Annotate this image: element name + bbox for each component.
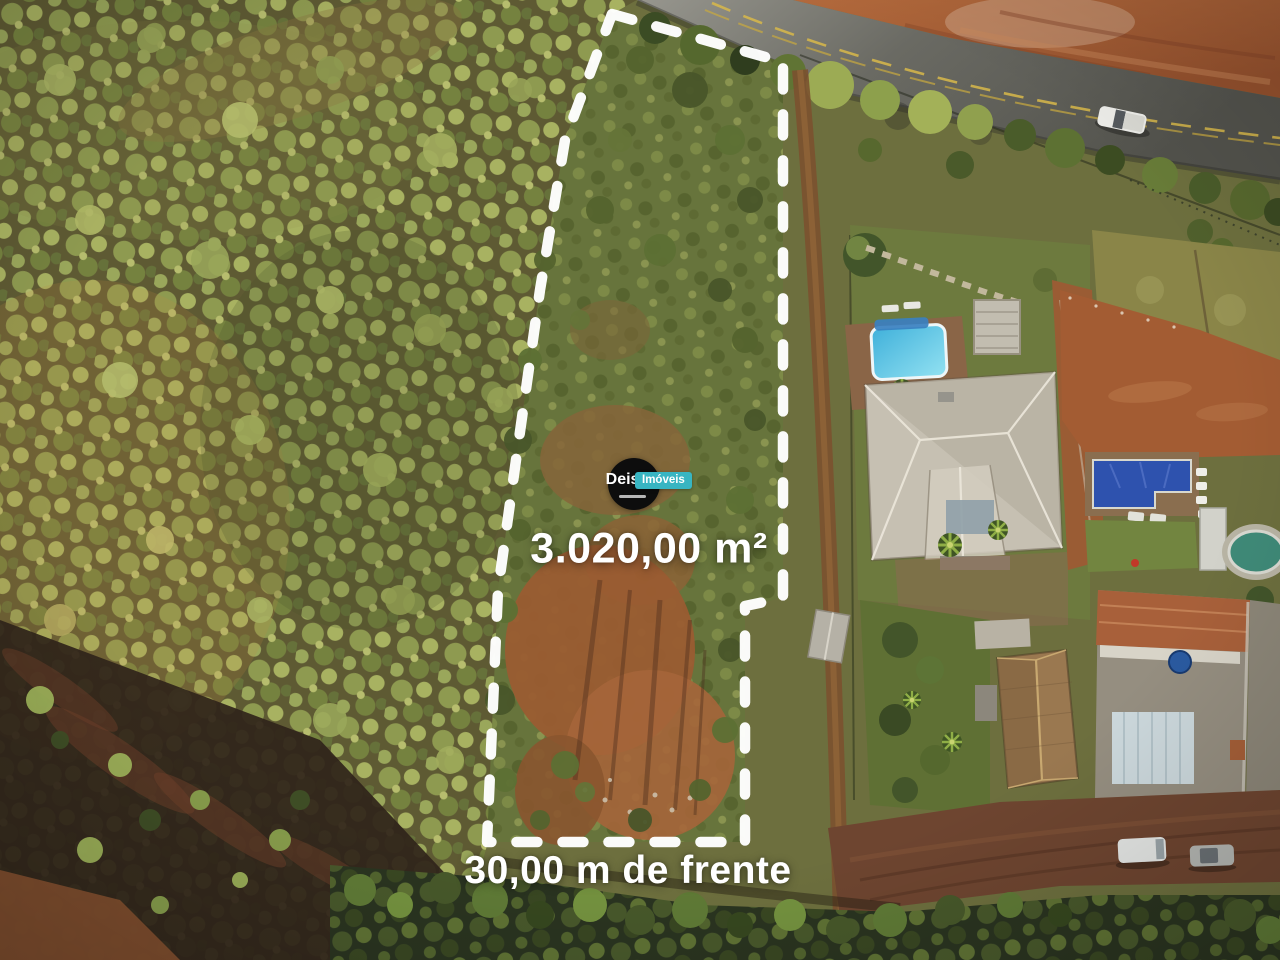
logo-chip: Imóveis [635,472,692,489]
frontage-label: 30,00 m de frente [464,849,791,893]
area-label: 3.020,00 m² [530,525,767,574]
aerial-photo: Deise Imóveis 3.020,00 m² 30,00 m de fre… [0,0,1280,960]
agency-logo: Deise Imóveis [604,455,694,513]
logo-tagline [619,495,646,498]
